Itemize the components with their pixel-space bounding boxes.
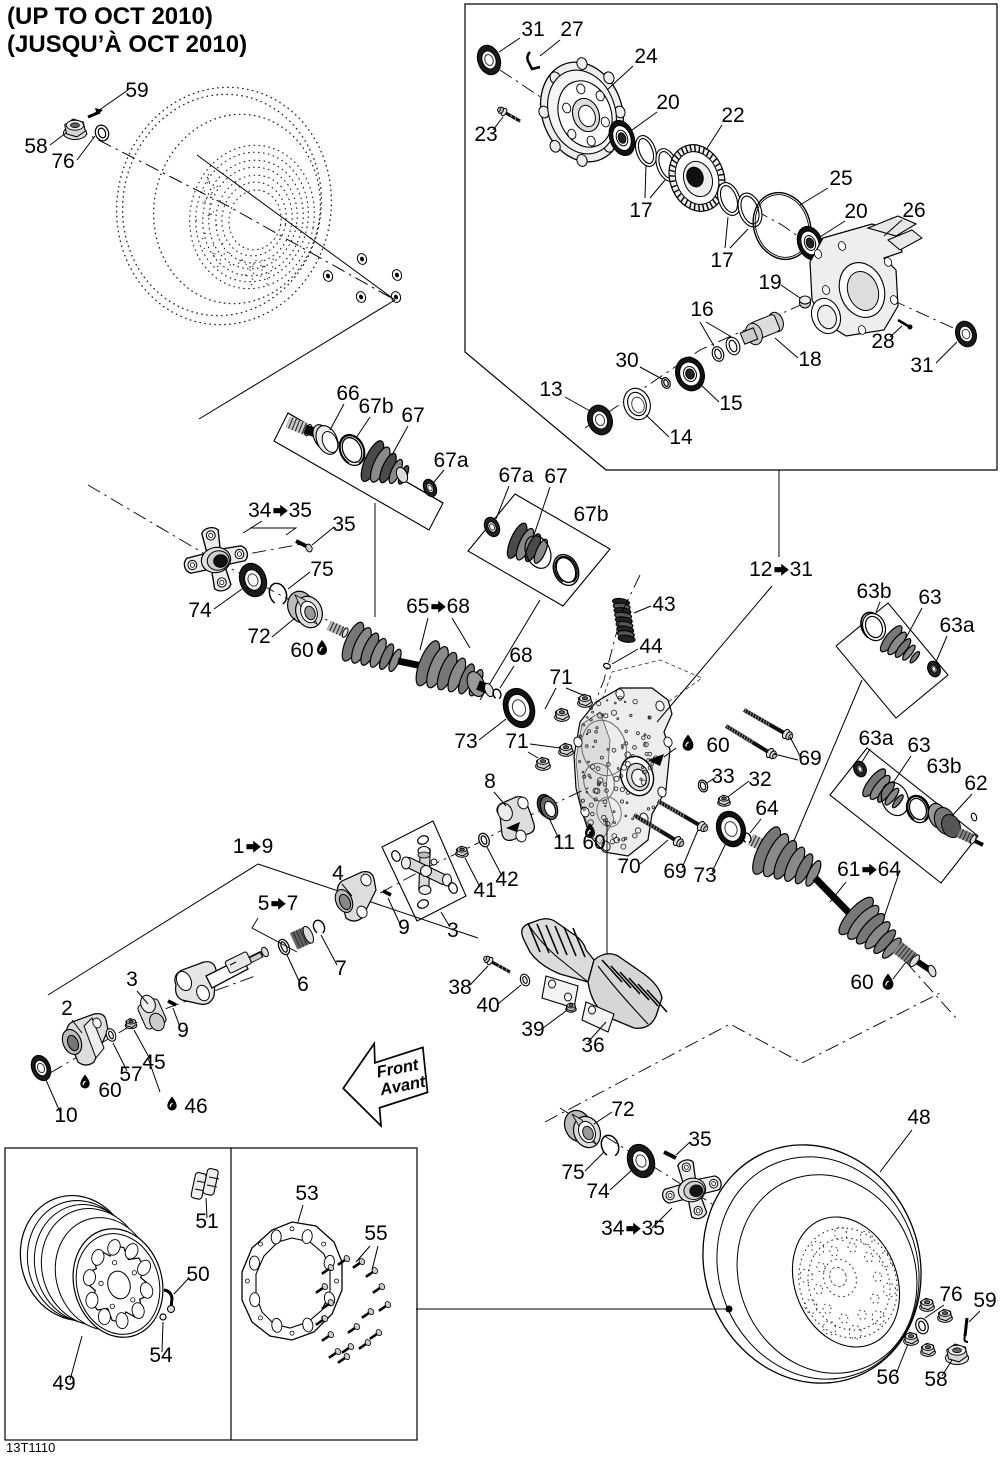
- svg-text:67a: 67a: [433, 449, 468, 472]
- svg-text:3: 3: [447, 919, 459, 942]
- svg-text:12: 12: [749, 558, 772, 581]
- svg-text:38: 38: [448, 976, 471, 999]
- svg-text:60: 60: [706, 734, 729, 757]
- svg-text:31: 31: [790, 558, 813, 581]
- svg-text:2: 2: [61, 997, 73, 1020]
- svg-text:9: 9: [177, 1019, 189, 1042]
- svg-text:60: 60: [290, 639, 313, 662]
- svg-text:34: 34: [248, 499, 272, 522]
- svg-text:75: 75: [561, 1161, 584, 1184]
- svg-text:36: 36: [581, 1034, 604, 1057]
- svg-text:5: 5: [258, 892, 270, 915]
- svg-text:59: 59: [125, 79, 148, 102]
- svg-text:45: 45: [142, 1051, 165, 1074]
- svg-text:67: 67: [544, 465, 567, 488]
- svg-text:60: 60: [98, 1079, 121, 1102]
- svg-text:17: 17: [710, 249, 733, 272]
- svg-text:61: 61: [837, 858, 860, 881]
- svg-text:74: 74: [586, 1180, 610, 1203]
- svg-text:60: 60: [850, 971, 873, 994]
- svg-text:63a: 63a: [939, 614, 974, 637]
- svg-text:54: 54: [149, 1344, 173, 1367]
- svg-text:14: 14: [669, 426, 693, 449]
- svg-text:35: 35: [289, 499, 312, 522]
- svg-text:74: 74: [188, 599, 212, 622]
- svg-text:53: 53: [295, 1182, 318, 1205]
- svg-text:15: 15: [719, 392, 742, 415]
- svg-text:31: 31: [521, 18, 544, 41]
- svg-text:55: 55: [364, 1222, 387, 1245]
- svg-text:71: 71: [505, 730, 528, 753]
- svg-text:68: 68: [509, 644, 532, 667]
- svg-text:8: 8: [484, 770, 496, 793]
- svg-text:39: 39: [521, 1018, 544, 1041]
- svg-text:67a: 67a: [498, 464, 533, 487]
- svg-text:66: 66: [336, 382, 359, 405]
- svg-text:44: 44: [639, 635, 663, 658]
- svg-text:48: 48: [907, 1106, 930, 1129]
- svg-text:76: 76: [939, 1283, 962, 1306]
- svg-text:27: 27: [560, 18, 583, 41]
- svg-text:23: 23: [474, 123, 497, 146]
- svg-text:26: 26: [902, 199, 925, 222]
- svg-text:6: 6: [297, 973, 309, 996]
- svg-text:69: 69: [663, 860, 686, 883]
- svg-text:13T1110: 13T1110: [6, 1440, 55, 1455]
- svg-text:64: 64: [755, 797, 779, 820]
- svg-text:18: 18: [798, 348, 821, 371]
- svg-text:19: 19: [758, 271, 781, 294]
- svg-text:72: 72: [247, 625, 270, 648]
- svg-text:20: 20: [844, 200, 867, 223]
- svg-text:63b: 63b: [856, 580, 891, 603]
- svg-text:71: 71: [549, 666, 572, 689]
- svg-text:3: 3: [126, 968, 138, 991]
- svg-text:7: 7: [287, 892, 299, 915]
- svg-text:17: 17: [629, 199, 652, 222]
- svg-text:58: 58: [924, 1368, 947, 1391]
- svg-text:64: 64: [878, 858, 902, 881]
- svg-text:63a: 63a: [858, 727, 893, 750]
- svg-text:73: 73: [693, 864, 716, 887]
- svg-text:28: 28: [871, 330, 894, 353]
- svg-text:76: 76: [51, 150, 74, 173]
- svg-text:20: 20: [656, 91, 679, 114]
- svg-text:33: 33: [711, 765, 734, 788]
- svg-text:(UP TO OCT 2010): (UP TO OCT 2010): [7, 3, 213, 30]
- svg-text:50: 50: [186, 1263, 209, 1286]
- svg-text:40: 40: [476, 994, 499, 1017]
- svg-text:9: 9: [398, 916, 410, 939]
- svg-text:67b: 67b: [573, 503, 608, 526]
- svg-text:(JUSQU’À OCT 2010): (JUSQU’À OCT 2010): [7, 30, 247, 58]
- svg-text:7: 7: [335, 957, 347, 980]
- svg-text:65: 65: [406, 595, 429, 618]
- svg-text:42: 42: [495, 868, 518, 891]
- svg-text:68: 68: [447, 595, 470, 618]
- svg-text:60: 60: [582, 831, 605, 854]
- svg-text:22: 22: [721, 104, 744, 127]
- svg-text:31: 31: [910, 354, 933, 377]
- svg-text:70: 70: [617, 855, 640, 878]
- svg-text:58: 58: [24, 135, 47, 158]
- svg-text:62: 62: [964, 772, 987, 795]
- svg-text:63: 63: [918, 586, 941, 609]
- svg-text:35: 35: [688, 1128, 711, 1151]
- svg-text:30: 30: [615, 349, 638, 372]
- svg-text:24: 24: [634, 45, 658, 68]
- svg-text:67: 67: [401, 404, 424, 427]
- svg-text:4: 4: [332, 862, 344, 885]
- svg-text:73: 73: [454, 730, 477, 753]
- svg-text:41: 41: [473, 879, 496, 902]
- svg-text:1: 1: [233, 835, 245, 858]
- svg-text:56: 56: [876, 1366, 899, 1389]
- svg-text:49: 49: [52, 1372, 75, 1395]
- svg-text:72: 72: [611, 1098, 634, 1121]
- svg-text:35: 35: [332, 513, 355, 536]
- svg-text:9: 9: [262, 835, 274, 858]
- svg-text:59: 59: [973, 1289, 996, 1312]
- svg-text:57: 57: [119, 1063, 142, 1086]
- svg-text:13: 13: [539, 378, 562, 401]
- svg-text:32: 32: [748, 768, 771, 791]
- svg-text:34: 34: [601, 1217, 625, 1240]
- svg-text:69: 69: [798, 747, 821, 770]
- svg-text:25: 25: [829, 167, 852, 190]
- svg-text:43: 43: [652, 593, 675, 616]
- svg-text:63b: 63b: [926, 755, 961, 778]
- svg-text:35: 35: [642, 1217, 665, 1240]
- svg-text:16: 16: [690, 298, 713, 321]
- svg-text:67b: 67b: [358, 395, 393, 418]
- svg-text:75: 75: [310, 558, 333, 581]
- svg-text:63: 63: [907, 734, 930, 757]
- svg-text:46: 46: [184, 1095, 207, 1118]
